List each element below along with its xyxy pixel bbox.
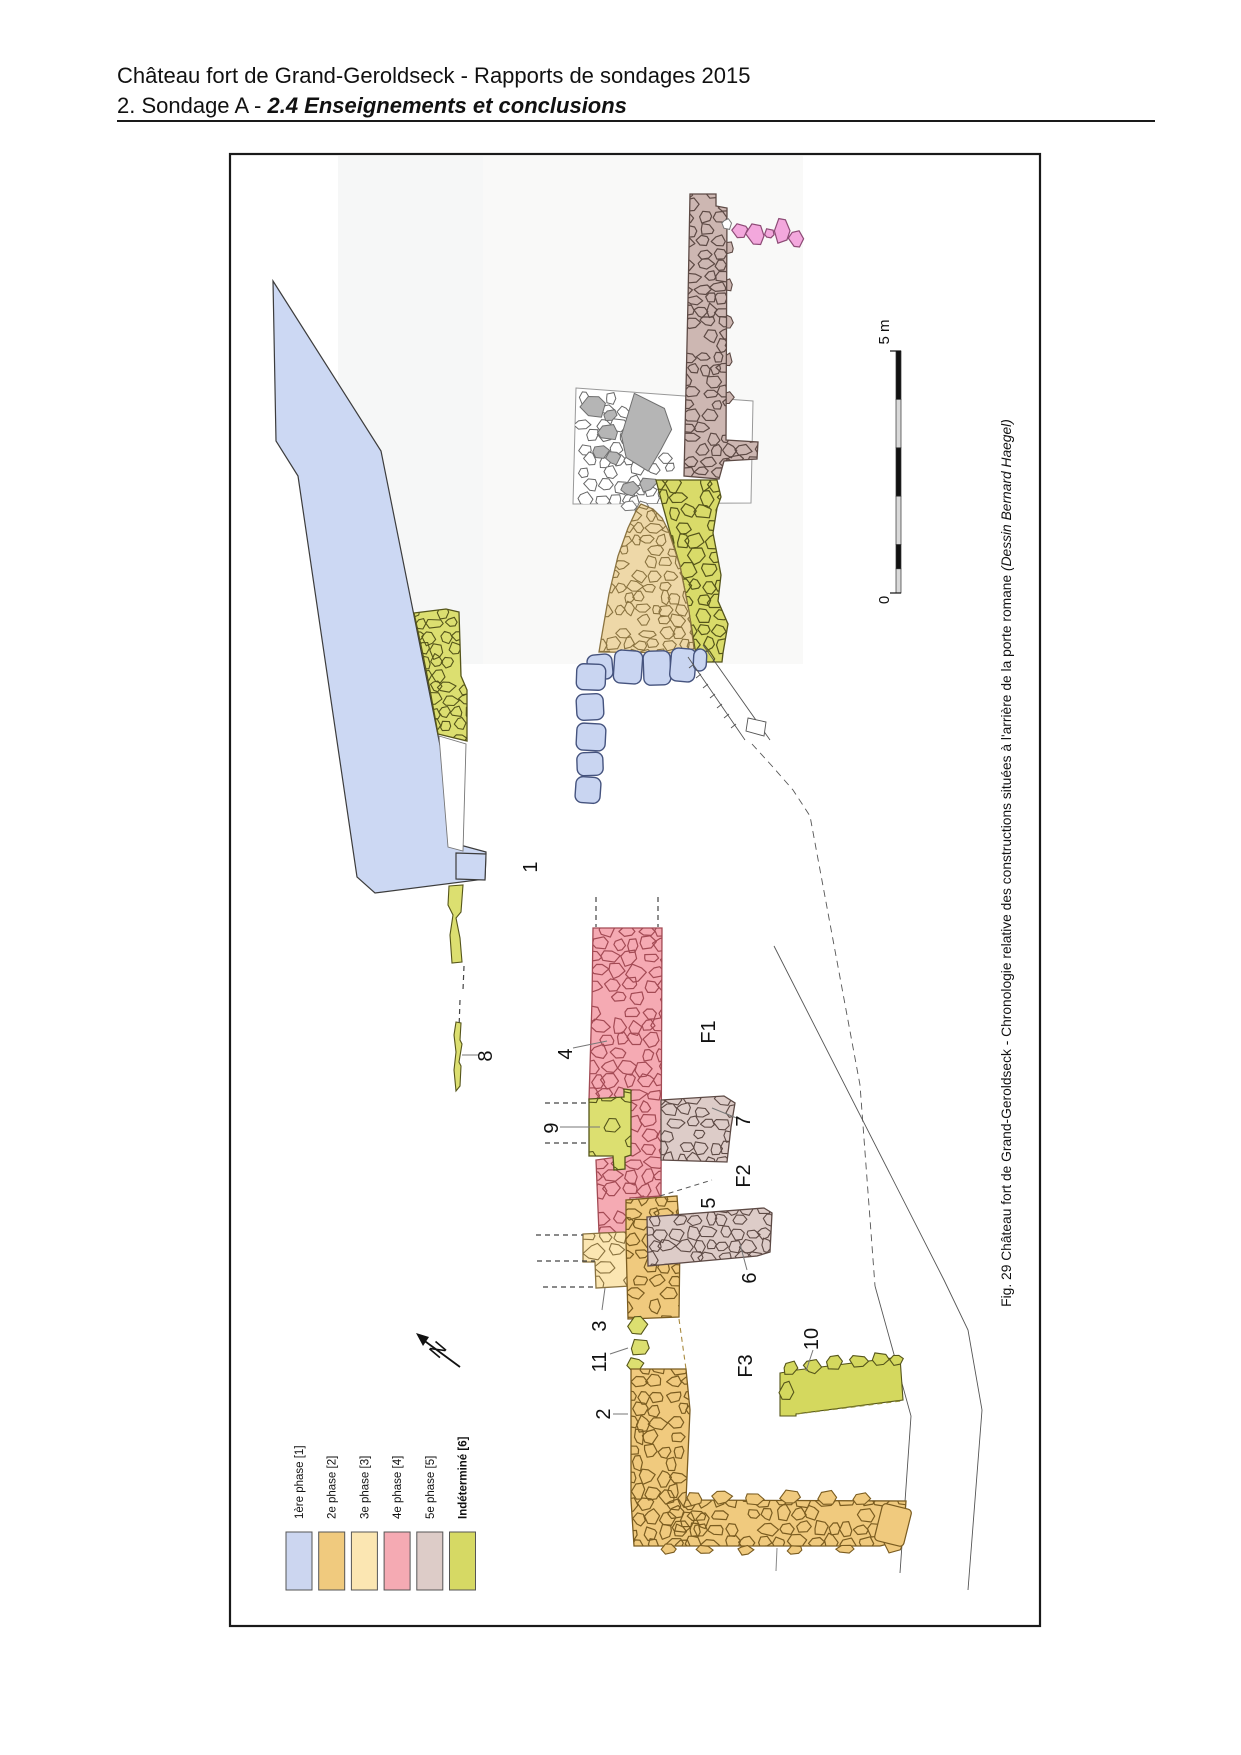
- svg-text:10: 10: [801, 1328, 823, 1350]
- svg-text:F1: F1: [698, 1020, 720, 1043]
- svg-text:5 m: 5 m: [876, 319, 893, 344]
- svg-text:3e phase [3]: 3e phase [3]: [359, 1456, 371, 1519]
- svg-text:F3: F3: [735, 1354, 757, 1377]
- svg-text:3: 3: [589, 1320, 611, 1331]
- svg-text:1: 1: [520, 861, 542, 872]
- svg-text:7: 7: [733, 1115, 755, 1126]
- svg-text:F2: F2: [733, 1164, 755, 1187]
- svg-text:Indéterminé [6]: Indéterminé [6]: [458, 1436, 470, 1519]
- svg-text:11: 11: [589, 1352, 611, 1373]
- svg-text:2e phase [2]: 2e phase [2]: [327, 1456, 339, 1519]
- svg-text:5: 5: [698, 1197, 720, 1208]
- svg-text:4: 4: [555, 1048, 577, 1059]
- svg-text:5e phase [5]: 5e phase [5]: [425, 1456, 437, 1519]
- svg-text:8: 8: [475, 1050, 497, 1061]
- svg-text:4e phase [4]: 4e phase [4]: [392, 1456, 404, 1519]
- svg-text:2: 2: [593, 1408, 615, 1419]
- svg-text:Fig. 29 Château fort de Grand-: Fig. 29 Château fort de Grand-Geroldseck…: [999, 419, 1014, 1307]
- svg-text:9: 9: [541, 1122, 563, 1133]
- svg-text:0: 0: [876, 596, 893, 604]
- svg-text:1ère phase [1]: 1ère phase [1]: [294, 1445, 306, 1519]
- svg-text:6: 6: [739, 1272, 761, 1283]
